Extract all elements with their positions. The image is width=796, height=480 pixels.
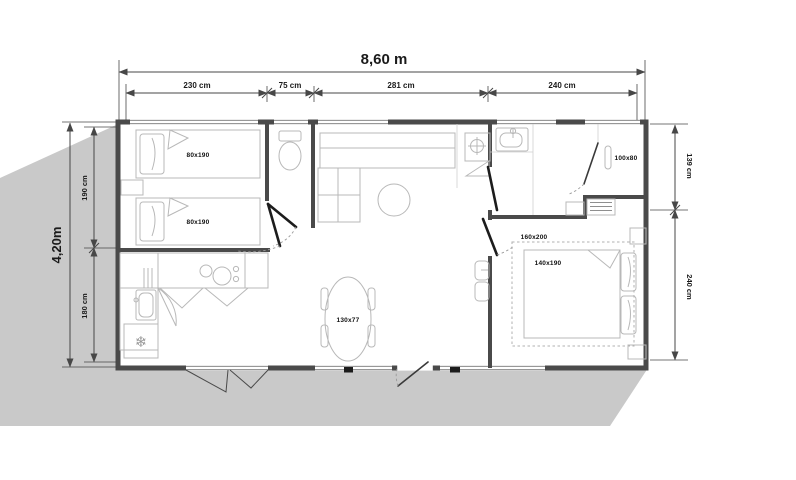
overall-depth-label: 4,20m xyxy=(49,227,64,264)
bed1-size-label: 80x190 xyxy=(187,152,210,159)
shower-size-label: 100x80 xyxy=(615,155,638,162)
fridge-snowflake-icon: ❄ xyxy=(135,333,148,351)
double-bed-frame-label: 160x200 xyxy=(521,234,548,241)
double-bed-mattress-label: 140x190 xyxy=(535,260,562,267)
bed2-size-label: 80x190 xyxy=(187,219,210,226)
overall-width-label: 8,60 m xyxy=(361,51,408,68)
dining-table-size-label: 130x77 xyxy=(337,317,360,324)
dim-right-2: 240 cm xyxy=(685,274,694,300)
dim-top-2: 75 cm xyxy=(279,81,302,90)
dim-top-4: 240 cm xyxy=(548,81,575,90)
dim-top-1: 230 cm xyxy=(183,81,210,90)
entrance-door-opening xyxy=(396,365,434,370)
dim-right-1: 139 cm xyxy=(685,153,694,179)
dim-left-1: 190 cm xyxy=(80,175,89,201)
floorplan-svg: 80x190 80x190 100x80 160x200 140x190 130… xyxy=(0,0,796,480)
dim-left-2: 180 cm xyxy=(80,293,89,319)
dim-top-3: 281 cm xyxy=(387,81,414,90)
floorplan-canvas: 80x190 80x190 100x80 160x200 140x190 130… xyxy=(0,0,796,480)
